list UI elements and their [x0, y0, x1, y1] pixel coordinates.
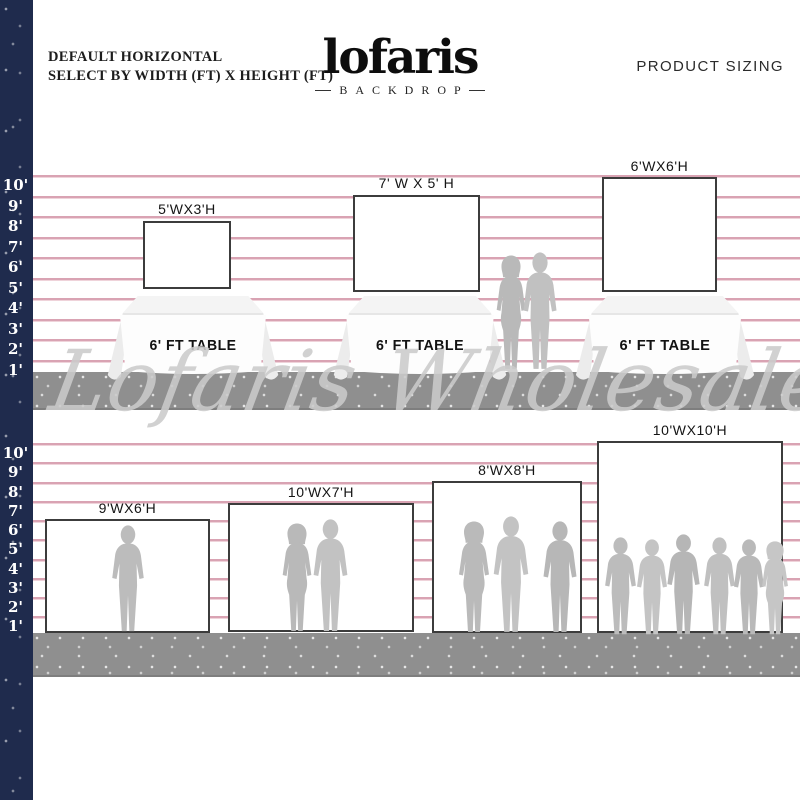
- backdrop-size-label-5x3: 5'WX3'H: [143, 201, 231, 217]
- ruler-foot-label: 1': [0, 618, 31, 635]
- ruler-foot-label: 9': [0, 198, 31, 215]
- backdrop-size-label-10x7: 10'WX7'H: [228, 484, 414, 500]
- backdrop-size-label-7x5: 7' W X 5' H: [353, 175, 480, 191]
- woman-silhouette: [756, 541, 794, 636]
- man-silhouette: [107, 525, 149, 633]
- backdrop-6x6: [602, 177, 717, 292]
- ruler-foot-label: 2': [0, 599, 31, 616]
- man-silhouette: [518, 252, 562, 371]
- ruler-foot-label: 7': [0, 239, 31, 256]
- banquet-table-2: 6' FT TABLE: [330, 295, 510, 395]
- man-silhouette: [488, 516, 534, 634]
- ruler-foot-label: 8': [0, 218, 31, 235]
- ruler-foot-label: 8': [0, 484, 31, 501]
- ruler-foot-label: 5': [0, 541, 31, 558]
- backdrop-size-label-10x10: 10'WX10'H: [597, 422, 783, 438]
- floor-band-bottom: [33, 633, 800, 677]
- brand-subtitle: BACKDROP: [331, 83, 468, 98]
- ruler-foot-label: 3': [0, 580, 31, 597]
- backdrop-size-label-6x6: 6'WX6'H: [602, 158, 717, 174]
- left-ruler-bar: [0, 0, 33, 800]
- dash-right: [469, 90, 485, 92]
- ruler-foot-label: 4': [0, 300, 31, 317]
- table-label-2: 6' FT TABLE: [376, 338, 464, 354]
- ruler-foot-label: 4': [0, 561, 31, 578]
- ruler-foot-label: 1': [0, 362, 31, 379]
- ruler-foot-label: 10': [0, 445, 31, 462]
- product-sizing-sheet: DEFAULT HORIZONTAL SELECT BY WIDTH (FT) …: [0, 0, 800, 800]
- backdrop-size-label-8x8: 8'WX8'H: [432, 462, 582, 478]
- banquet-table-3: 6' FT TABLE: [572, 295, 758, 395]
- ruler-foot-label: 6': [0, 522, 31, 539]
- man-silhouette: [308, 519, 353, 633]
- product-sizing-label: PRODUCT SIZING: [636, 58, 784, 75]
- ruler-foot-label: 9': [0, 464, 31, 481]
- backdrop-7x5: [353, 195, 480, 292]
- ruler-foot-label: 2': [0, 341, 31, 358]
- table-label-3: 6' FT TABLE: [620, 338, 711, 354]
- ruler-foot-label: 7': [0, 503, 31, 520]
- ruler-foot-label: 3': [0, 321, 31, 338]
- ruler-foot-label: 10': [0, 177, 31, 194]
- banquet-table-1: 6' FT TABLE: [104, 295, 282, 395]
- backdrop-5x3: [143, 221, 231, 289]
- backdrop-size-label-9x6: 9'WX6'H: [45, 500, 210, 516]
- ruler-foot-label: 6': [0, 259, 31, 276]
- table-label-1: 6' FT TABLE: [150, 338, 237, 355]
- dash-left: [315, 90, 331, 92]
- man-silhouette: [538, 521, 582, 634]
- ruler-foot-label: 5': [0, 280, 31, 297]
